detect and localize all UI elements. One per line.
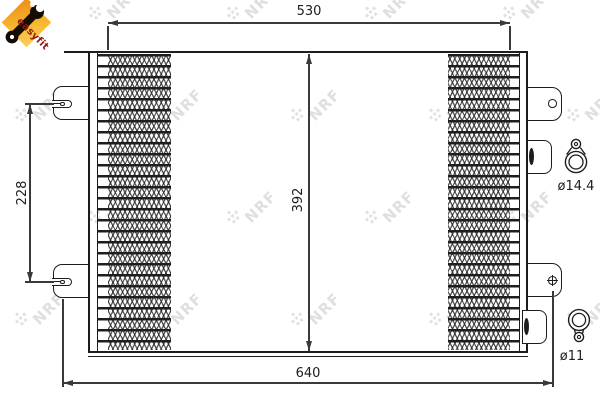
nrf-watermark: NRF <box>167 85 206 124</box>
dim-228-arrow-top <box>27 104 33 114</box>
dim-228-label: 228 <box>6 171 38 215</box>
watermark-dots <box>291 115 295 119</box>
nrf-watermark: NRF <box>581 85 600 124</box>
core-bottom-edge <box>88 351 528 353</box>
watermark-dots <box>15 115 19 119</box>
dim-640-line <box>63 382 553 383</box>
dim-392-label: 392 <box>282 178 314 222</box>
watermark-text: NRF <box>241 0 280 23</box>
nrf-watermark: NRF <box>305 85 344 124</box>
nrf-watermark: NRF <box>517 187 556 226</box>
bracket-top-left-hole <box>60 102 65 107</box>
nrf-watermark: NRF <box>379 0 418 23</box>
fitting-symbol-bottom <box>560 304 598 348</box>
watermark-text: NRF <box>167 289 206 328</box>
dim-392-arrow-bottom <box>306 341 312 351</box>
right-tube-stubs <box>510 54 519 350</box>
watermark-text: NRF <box>305 289 344 328</box>
dim-640-ext-right <box>552 291 553 387</box>
fitting-top-label: ø14.4 <box>553 179 599 194</box>
dim-530-arrow-left <box>108 20 118 26</box>
right-header-line <box>519 53 520 351</box>
watermark-text: NRF <box>241 187 280 226</box>
watermark-text: NRF <box>305 85 344 124</box>
dim-530-ext-right <box>509 26 510 50</box>
core-bottom-plate-line <box>88 356 528 357</box>
watermark-dots <box>227 217 231 221</box>
dim-530-ext-left <box>107 26 108 50</box>
nrf-watermark: NRF <box>379 187 418 226</box>
watermark-dots <box>567 115 571 119</box>
bracket-bottom-left-hole <box>60 280 65 285</box>
dim-228-ext-top <box>25 103 54 104</box>
core-top-edge <box>64 51 528 53</box>
watermark-dots <box>89 13 93 17</box>
pipe-port-mid-opening <box>529 148 534 165</box>
screw-cross-vertical <box>552 275 553 287</box>
dim-640-ext-left <box>62 299 63 387</box>
left-tube-stubs <box>97 54 108 350</box>
watermark-text: NRF <box>517 0 556 23</box>
dim-392-arrow-top <box>306 54 312 64</box>
watermark-dots <box>365 13 369 17</box>
watermark-text: NRF <box>517 187 556 226</box>
watermark-dots <box>503 13 507 17</box>
pipe-port-bottom-opening <box>524 318 529 335</box>
pipe-port-mid-right <box>527 140 552 174</box>
fitting-bottom-label: ø11 <box>552 349 592 364</box>
watermark-dots <box>429 115 433 119</box>
watermark-text: NRF <box>581 85 600 124</box>
watermark-dots <box>429 319 433 323</box>
bracket-top-right <box>527 87 562 121</box>
watermark-dots <box>15 319 19 323</box>
nrf-watermark: NRF <box>517 0 556 23</box>
watermark-text: NRF <box>167 85 206 124</box>
technical-drawing-canvas: NRFNRFNRFNRFNRFNRFNRFNRFNRFNRFNRFNRFNRFN… <box>0 0 600 400</box>
easyfit-logo: easyfit <box>0 0 58 54</box>
watermark-text: NRF <box>379 0 418 23</box>
nrf-watermark: NRF <box>241 0 280 23</box>
nrf-watermark: NRF <box>305 289 344 328</box>
fitting-symbol-top <box>556 132 598 178</box>
dim-228-ext-bottom <box>25 281 54 282</box>
left-fin-core <box>108 54 171 350</box>
right-fin-core <box>448 54 510 350</box>
watermark-dots <box>291 319 295 323</box>
nrf-watermark: NRF <box>167 289 206 328</box>
nrf-watermark: NRF <box>0 187 4 226</box>
watermark-dots <box>365 217 369 221</box>
nrf-watermark: NRF <box>241 187 280 226</box>
bracket-top-right-hole <box>548 99 557 108</box>
dim-530-arrow-right <box>500 20 510 26</box>
pipe-port-bottom-right <box>522 310 547 344</box>
dim-640-label: 640 <box>281 366 335 381</box>
watermark-text: NRF <box>0 187 4 226</box>
bracket-bottom-right <box>527 263 562 297</box>
watermark-text: NRF <box>379 187 418 226</box>
dim-530-label: 530 <box>282 4 336 19</box>
dim-530-line <box>108 22 510 23</box>
watermark-dots <box>227 13 231 17</box>
dim-640-arrow-left <box>63 380 73 386</box>
